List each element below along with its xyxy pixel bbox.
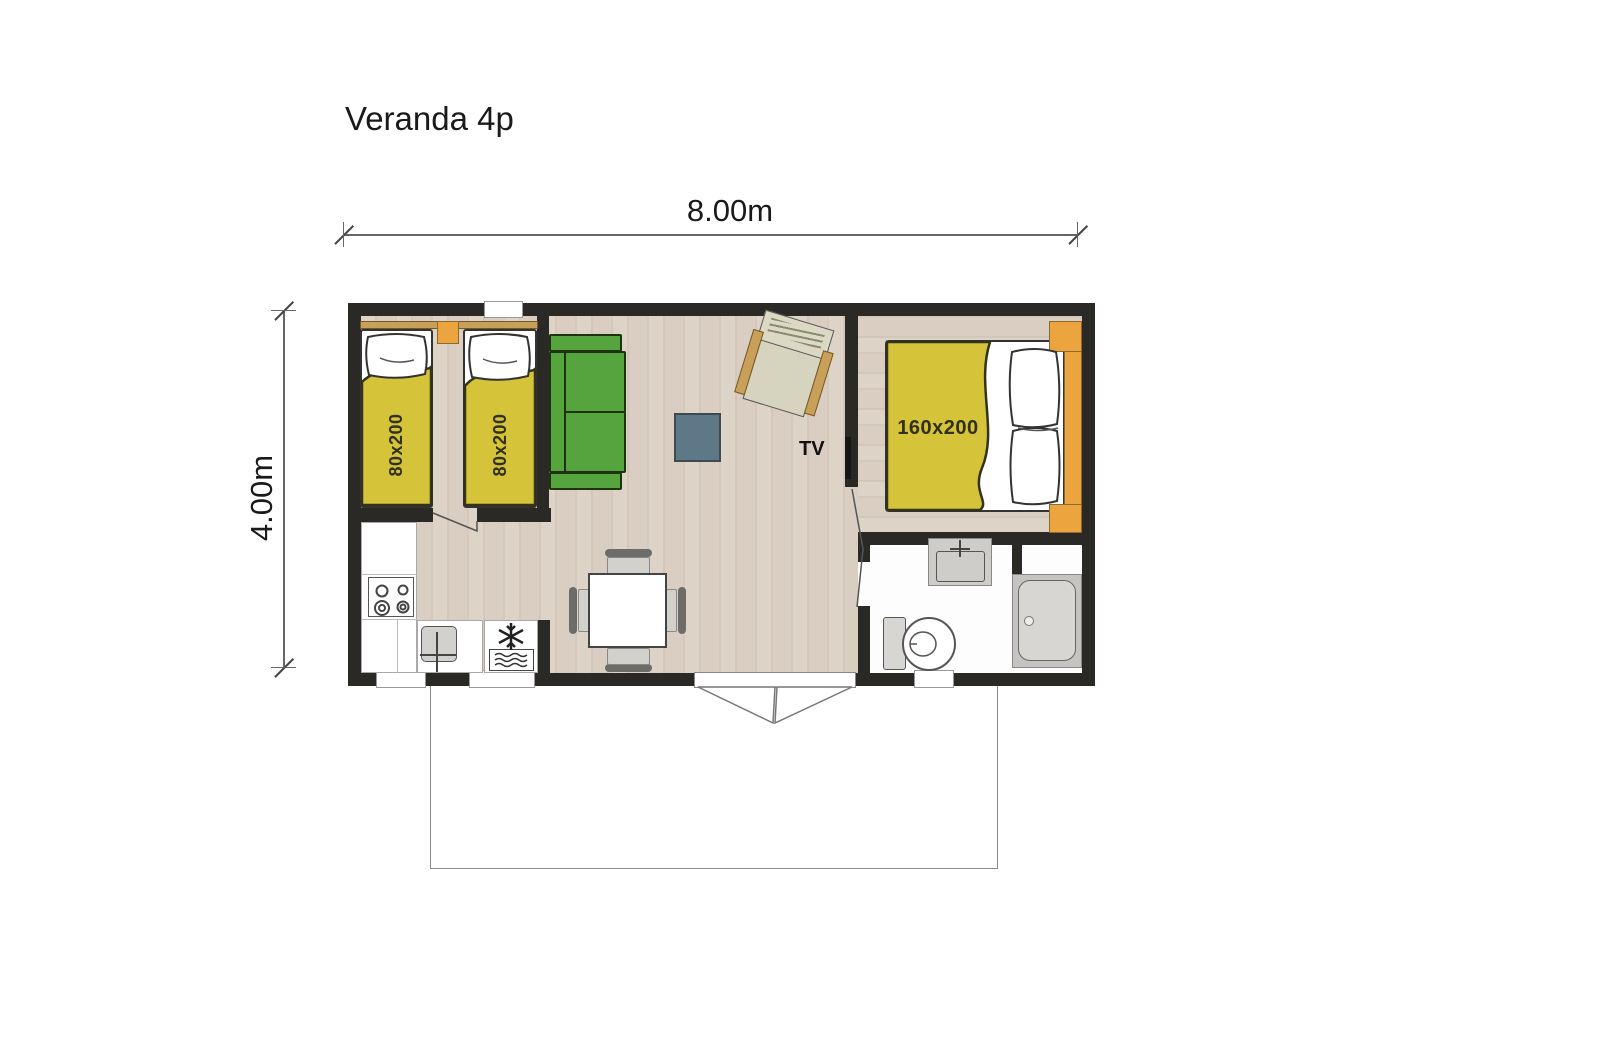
- kitchen-sink: [421, 626, 457, 662]
- width-dimension-label: 8.00m: [630, 193, 830, 229]
- tv: [845, 437, 851, 479]
- microwave: [489, 649, 534, 671]
- wall-bathroom-left-upper: [858, 532, 870, 562]
- kitchen-counter-divider-3: [397, 620, 398, 673]
- wall-kitchen-stub: [537, 620, 550, 673]
- dining-chair-bottom-back: [605, 664, 652, 672]
- dining-chair-right-back: [678, 587, 686, 634]
- window-bottom-bathroom: [914, 670, 954, 688]
- kitchen-counter-divider-2: [361, 619, 417, 620]
- entrance-door-sill: [694, 672, 856, 688]
- dining-chair-top-back: [605, 549, 652, 557]
- height-dimension-label: 4.00m: [244, 423, 280, 573]
- shower-drain: [1024, 616, 1034, 626]
- dining-chair-bottom-seat: [607, 648, 650, 665]
- stove: [368, 577, 414, 617]
- window-top: [484, 301, 523, 318]
- veranda-outline: [430, 686, 998, 869]
- coffee-table: [674, 413, 721, 462]
- page-title: Veranda 4p: [345, 100, 514, 138]
- nightstand: [437, 321, 459, 344]
- double-bed-headboard-block-bottom: [1049, 504, 1082, 533]
- dining-chair-left-back: [569, 587, 577, 634]
- kitchen-counter-divider-1: [361, 574, 417, 575]
- wall-bedroom1-bottom-left: [356, 508, 433, 522]
- sofa-armrest-top: [549, 334, 622, 352]
- double-bed-headboard: [1064, 350, 1082, 508]
- sofa-armrest-bottom: [549, 472, 622, 490]
- wall-bathroom-left-lower: [858, 606, 870, 673]
- dimension-ext-bottom: [271, 667, 296, 668]
- double-bed-size-label: 160x200: [878, 417, 998, 440]
- sofa-seat-cushion-2: [564, 411, 626, 473]
- wall-bedroom1-right: [537, 316, 549, 522]
- dimension-ext-top: [271, 310, 296, 311]
- dimension-line-height: [283, 311, 285, 668]
- floorplan-canvas: Veranda 4p 8.00m 4.00m: [0, 0, 1600, 1040]
- dimension-ext-right: [1077, 222, 1078, 247]
- dimension-ext-left: [343, 222, 344, 247]
- single-bed-1-size-label: 80x200: [378, 395, 414, 495]
- double-bed-headboard-block-top: [1049, 321, 1082, 352]
- sofa-seat-cushion-1: [564, 351, 626, 413]
- tv-label: TV: [799, 438, 825, 461]
- single-bed-2-size-label: 80x200: [482, 395, 518, 495]
- dimension-line-width: [344, 234, 1078, 236]
- dining-table: [588, 573, 667, 648]
- washbasin: [936, 551, 985, 582]
- toilet-tank: [883, 617, 906, 670]
